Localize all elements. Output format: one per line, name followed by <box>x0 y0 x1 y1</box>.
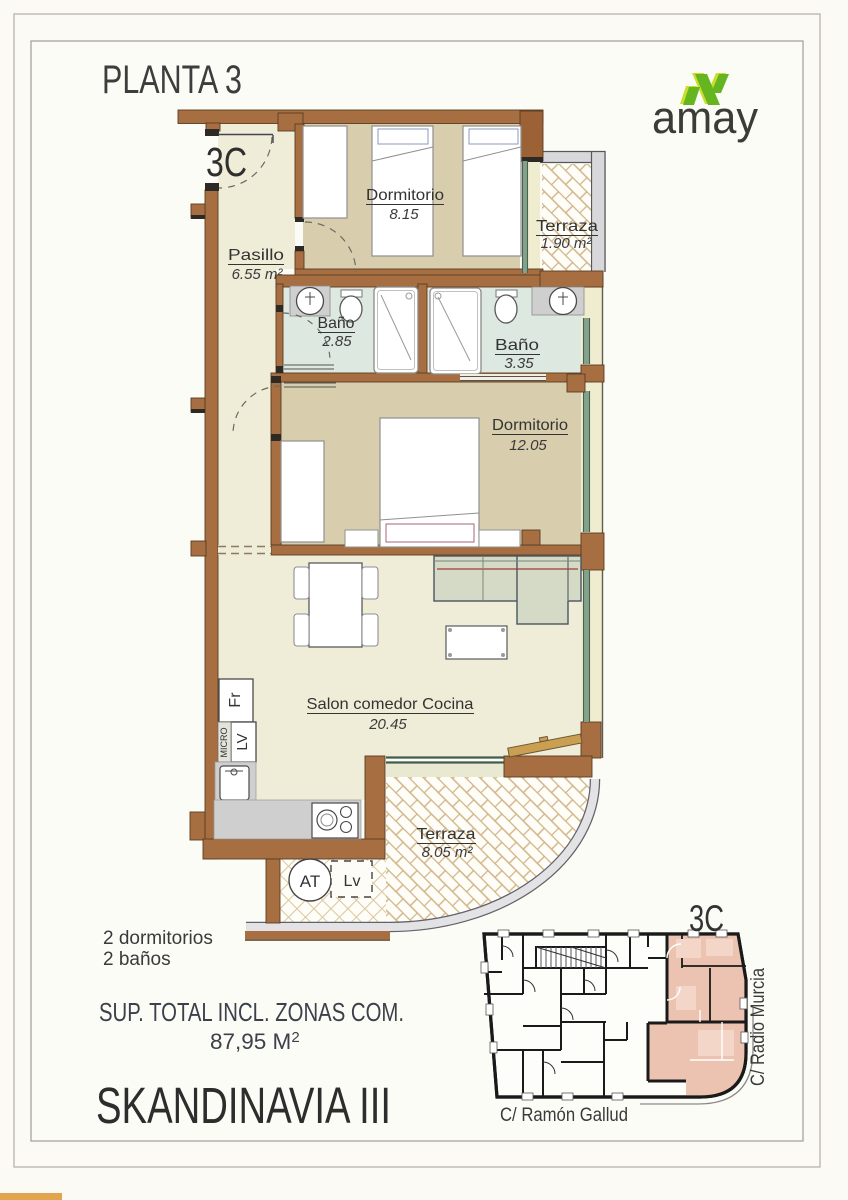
svg-text:2 dormitorios: 2 dormitorios <box>103 928 213 949</box>
svg-text:LV: LV <box>234 733 251 750</box>
svg-text:C/ Radio Murcia: C/ Radio Murcia <box>748 968 769 1086</box>
svg-text:Fr: Fr <box>227 692 244 708</box>
svg-text:Lv: Lv <box>344 873 361 890</box>
svg-text:Terraza: Terraza <box>417 826 476 843</box>
svg-text:1.90 m²: 1.90 m² <box>541 235 593 252</box>
svg-text:Dormitorio: Dormitorio <box>366 187 444 204</box>
svg-text:AT: AT <box>300 872 320 891</box>
svg-text:3.35: 3.35 <box>504 355 534 372</box>
svg-text:Baño: Baño <box>495 337 539 354</box>
svg-text:Dormitorio: Dormitorio <box>492 417 568 434</box>
svg-text:2 baños: 2 baños <box>103 949 171 970</box>
svg-text:6.55 m²: 6.55 m² <box>232 266 284 283</box>
svg-text:8.15: 8.15 <box>389 206 419 223</box>
svg-text:Baño: Baño <box>318 315 355 332</box>
svg-text:20.45: 20.45 <box>368 716 407 733</box>
svg-text:Salon comedor Cocina: Salon comedor Cocina <box>307 696 474 713</box>
svg-text:SUP. TOTAL INCL. ZONAS COM.: SUP. TOTAL INCL. ZONAS COM. <box>99 997 404 1027</box>
svg-text:3C: 3C <box>689 898 724 939</box>
svg-text:SKANDINAVIA III: SKANDINAVIA III <box>96 1077 391 1134</box>
svg-text:C/ Ramón Gallud: C/ Ramón Gallud <box>500 1105 628 1126</box>
svg-text:MICRO: MICRO <box>219 728 229 758</box>
svg-text:Terraza: Terraza <box>536 218 598 235</box>
svg-text:12.05: 12.05 <box>509 437 547 454</box>
svg-text:87,95 M2: 87,95 M2 <box>210 1029 300 1054</box>
svg-text:amay: amay <box>652 92 758 143</box>
svg-text:8.05 m²: 8.05 m² <box>422 844 474 861</box>
svg-text:3C: 3C <box>206 139 247 185</box>
svg-text:2.85: 2.85 <box>321 333 352 350</box>
svg-text:PLANTA 3: PLANTA 3 <box>102 58 242 102</box>
svg-text:Pasillo: Pasillo <box>228 247 284 264</box>
